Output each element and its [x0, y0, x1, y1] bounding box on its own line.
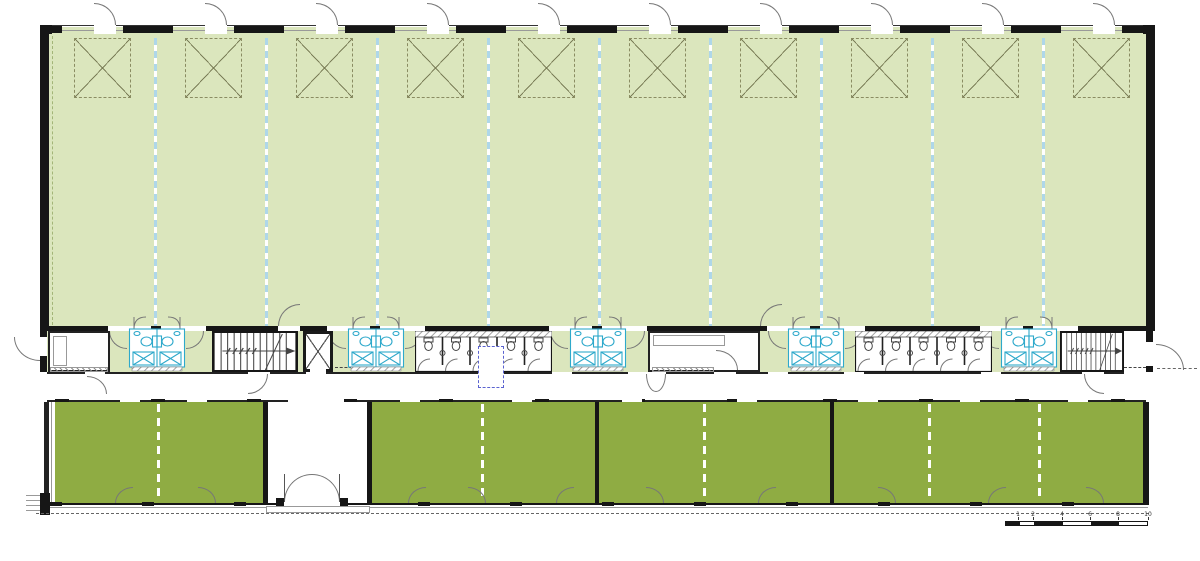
roof-overhang-dashed-line: [36, 513, 1149, 514]
east-exterior-wall: [1146, 25, 1155, 331]
hall-exterior-door: [1093, 24, 1115, 34]
exterior-stair: [40, 493, 50, 515]
west-exterior-wall: [40, 25, 49, 331]
bay-grid-line: [154, 38, 157, 331]
roof-hatch-icon: [962, 38, 1019, 98]
wall-opening: [40, 337, 47, 356]
door-swing-arc: [871, 3, 893, 25]
exterior-path-dashed-line: [1157, 368, 1197, 369]
wall-opening: [1146, 342, 1153, 366]
floor-plan-canvas: 1 2 4 6 8 10: [0, 0, 1200, 561]
hall-exterior-door: [538, 24, 560, 34]
stair-core: [1060, 331, 1124, 372]
east-exterior-wall-lower: [1143, 402, 1149, 503]
hall-exterior-door: [427, 24, 449, 34]
wall-opening: [714, 372, 736, 375]
wall-opening: [85, 372, 105, 375]
room-divider-dashed-line: [481, 404, 484, 501]
bay-grid-line: [265, 38, 268, 331]
roof-hatch-icon: [407, 38, 464, 98]
room-divider-dashed-line: [928, 404, 931, 501]
strip-vestibule: [1124, 331, 1146, 372]
exterior-door-swing-arc: [1156, 344, 1184, 370]
exterior-stair-steps: [26, 495, 40, 513]
lobby-west-wall: [263, 402, 268, 503]
scale-tick: [1033, 517, 1034, 520]
expansion-joint-dashed: [1124, 367, 1146, 368]
scale-tick: [1090, 517, 1091, 520]
door-swing-arc: [316, 3, 338, 25]
toilet-block: [855, 331, 992, 372]
bay-grid-line: [487, 38, 490, 331]
toilet-pair-unit: [787, 316, 845, 372]
toilet-pair-unit: [1000, 316, 1058, 372]
exterior-door-swing-arc: [14, 337, 40, 361]
door-swing-arc: [94, 3, 116, 25]
bay-grid-line: [931, 38, 934, 331]
room-divider-dashed-line: [703, 404, 706, 501]
entrance-canopy: [266, 506, 370, 513]
entrance-door-leaf: [339, 474, 340, 502]
hall-exterior-door: [205, 24, 227, 34]
roof-hatch-icon: [851, 38, 908, 98]
hall-exterior-door: [316, 24, 338, 34]
office-room: [599, 402, 830, 503]
wall-opening: [306, 372, 326, 375]
bay-grid-line: [709, 38, 712, 331]
door-swing-arc: [205, 3, 227, 25]
door-swing-arc: [427, 3, 449, 25]
bay-grid-line: [598, 38, 601, 331]
counter-furniture: [53, 336, 67, 366]
hall-inner-setback-line: [52, 36, 53, 330]
toilet-pair-unit: [569, 316, 627, 372]
hall-exterior-door: [982, 24, 1004, 34]
scale-tick: [1118, 517, 1119, 520]
door-swing-arc: [982, 3, 1004, 25]
door-swing-arc: [760, 3, 782, 25]
roof-hatch-icon: [518, 38, 575, 98]
roof-hatch-icon: [185, 38, 242, 98]
door-swing-arc: [1093, 3, 1115, 25]
wall-opening: [1124, 372, 1146, 375]
door-swing-arc: [649, 3, 671, 25]
roof-hatch-icon: [74, 38, 131, 98]
room-divider-dashed-line: [1038, 404, 1041, 501]
counter-furniture: [653, 335, 725, 346]
wall-opening: [981, 372, 1001, 375]
hall-exterior-door: [760, 24, 782, 34]
roof-hatch-icon: [629, 38, 686, 98]
hall-exterior-door: [94, 24, 116, 34]
scale-tick: [1018, 517, 1019, 520]
wall-opening: [768, 372, 788, 375]
wall-opening: [844, 372, 864, 375]
scale-bar-segments: [1005, 521, 1148, 526]
services-shaft: [478, 346, 504, 388]
bay-grid-line: [376, 38, 379, 331]
scale-bar: 1 2 4 6 8 10: [1005, 511, 1155, 529]
corridor-floor: [47, 372, 1146, 400]
toilet-pair-unit: [347, 316, 405, 372]
scale-tick: [1148, 517, 1149, 520]
bay-grid-line: [820, 38, 823, 331]
hall-exterior-door: [649, 24, 671, 34]
hall-exterior-door: [871, 24, 893, 34]
stair-core: [212, 331, 298, 372]
elevator: [303, 331, 333, 372]
toilet-pair-unit: [128, 316, 186, 372]
entrance-door-leaf: [284, 474, 285, 502]
west-window-wall: [44, 402, 49, 503]
roof-hatch-icon: [1073, 38, 1130, 98]
room-divider-dashed-line: [157, 404, 160, 501]
door-swing-arc: [538, 3, 560, 25]
wall-opening: [552, 372, 572, 375]
scale-tick: [1062, 517, 1063, 520]
bay-grid-line: [1042, 38, 1045, 331]
south-facade-line: [44, 507, 1148, 508]
roof-hatch-icon: [740, 38, 797, 98]
wall-opening: [628, 372, 648, 375]
west-window-wall-inner-line: [51, 402, 52, 503]
roof-hatch-icon: [296, 38, 353, 98]
